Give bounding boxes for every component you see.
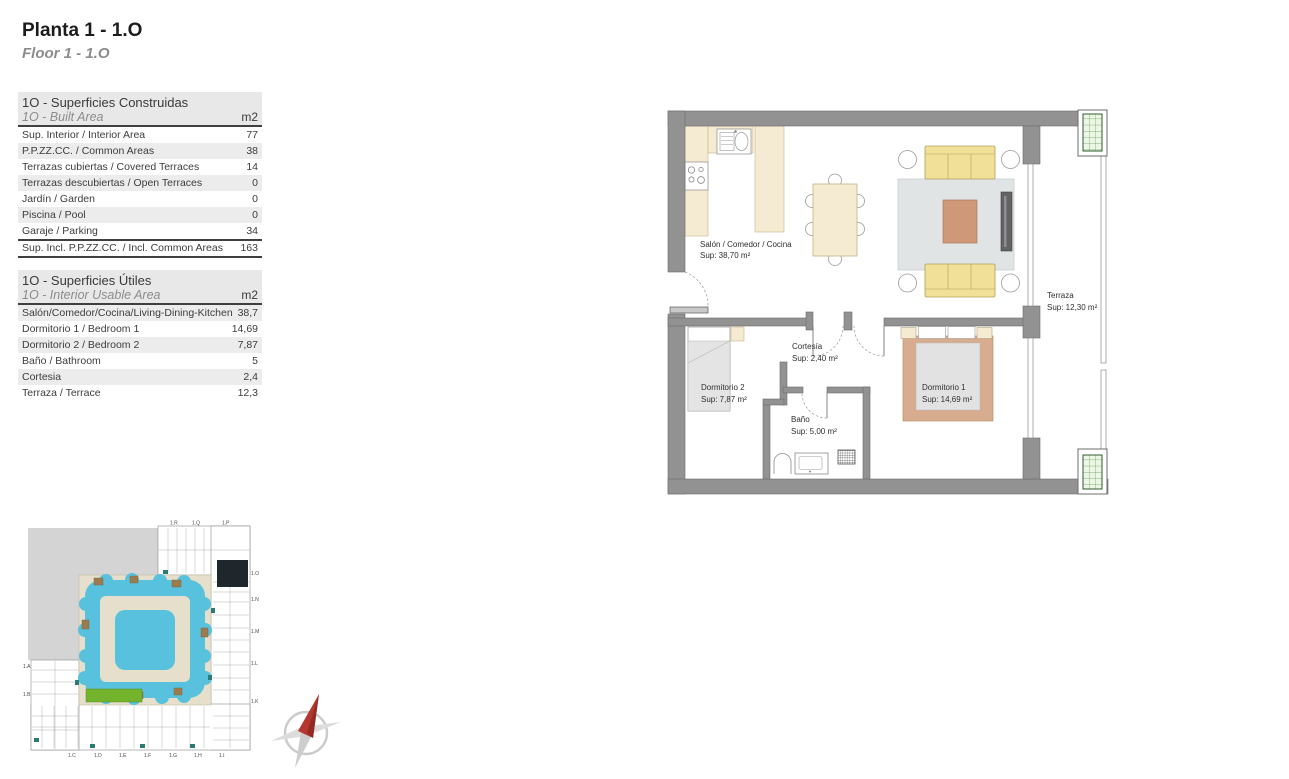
site-label-bottom: 1.C <box>68 753 76 759</box>
highlighted-unit-1o <box>217 560 248 587</box>
row-value: 0 <box>252 175 258 191</box>
row-label: Sup. Incl. P.P.ZZ.CC. / Incl. Common Are… <box>22 241 223 256</box>
table-row: Salón/Comedor/Cocina/Living-Dining-Kitch… <box>18 305 262 321</box>
table-row: Terrazas descubiertas / Open Terraces0 <box>18 175 262 191</box>
room-label-cortesia: Cortesía <box>792 342 823 351</box>
table-row-total: Sup. Incl. P.P.ZZ.CC. / Incl. Common Are… <box>18 239 262 258</box>
lawn <box>86 689 142 702</box>
site-label-right-highlighted: 1.O <box>251 571 259 577</box>
built-areas-unit: m2 <box>241 110 258 124</box>
row-label: Terraza / Terrace <box>22 385 101 401</box>
walls <box>668 111 1108 494</box>
row-label: Cortesia <box>22 369 61 385</box>
site-label-bottom: 1.H <box>194 753 202 759</box>
site-label-bottom: 1.I <box>219 753 225 759</box>
usable-areas-title-en: 1O - Interior Usable Area <box>22 288 160 302</box>
site-label-right: 1.M <box>251 629 259 635</box>
room-area-salon: Sup: 38,70 m² <box>700 251 751 260</box>
compass-icon <box>266 684 352 774</box>
row-value: 38 <box>246 143 258 159</box>
site-label-top: 1.Q <box>192 521 200 527</box>
shaft-bottom-icon <box>1078 449 1107 494</box>
row-label: Garaje / Parking <box>22 223 98 239</box>
floor-plan: Salón / Comedor / Cocina Sup: 38,70 m² T… <box>660 100 1110 500</box>
page-title: Planta 1 - 1.O <box>22 20 142 42</box>
toilet-icon <box>774 454 791 475</box>
site-plan: 1.R 1.Q 1.P 1.O 1.N 1.M 1.L 1.K 1.A 1.B … <box>22 520 262 768</box>
dining-table <box>806 174 865 266</box>
row-value: 163 <box>240 241 258 256</box>
room-area-terraza: Sup: 12,30 m² <box>1047 303 1098 312</box>
row-value: 34 <box>246 223 258 239</box>
table-row: P.P.ZZ.CC. / Common Areas38 <box>18 143 262 159</box>
table-row: Cortesia2,4 <box>18 369 262 385</box>
table-row: Sup. Interior / Interior Area77 <box>18 127 262 143</box>
site-label-right: 1.L <box>251 661 258 667</box>
vanity-icon <box>795 453 828 474</box>
row-label: Baño / Bathroom <box>22 353 101 369</box>
row-value: 2,4 <box>243 369 258 385</box>
compass <box>266 684 352 774</box>
row-value: 0 <box>252 207 258 223</box>
row-label: Jardín / Garden <box>22 191 95 207</box>
bathroom-fixtures <box>774 450 855 474</box>
row-value: 0 <box>252 191 258 207</box>
table-row: Baño / Bathroom5 <box>18 353 262 369</box>
row-label: P.P.ZZ.CC. / Common Areas <box>22 143 154 159</box>
row-label: Sup. Interior / Interior Area <box>22 127 145 143</box>
row-label: Terrazas descubiertas / Open Terraces <box>22 175 202 191</box>
stove-icon <box>685 162 708 190</box>
sofa <box>925 146 995 179</box>
usable-areas-unit: m2 <box>241 288 258 302</box>
site-plan-drawing: 1.R 1.Q 1.P 1.O 1.N 1.M 1.L 1.K 1.A 1.B … <box>22 520 262 768</box>
row-value: 14 <box>246 159 258 175</box>
room-label-dormitorio2: Dormitorio 2 <box>701 383 745 392</box>
shaft-top-icon <box>1078 110 1107 156</box>
site-label-bottom: 1.F <box>144 753 151 759</box>
room-label-salon: Salón / Comedor / Cocina <box>700 240 792 249</box>
bedroom1-bed <box>901 327 993 422</box>
row-label: Dormitorio 2 / Bedroom 2 <box>22 337 139 353</box>
row-label: Terrazas cubiertas / Covered Terraces <box>22 159 199 175</box>
built-areas-title-es: 1O - Superficies Construidas <box>22 95 258 110</box>
page: { "page": { "title": "Planta 1 - 1.O", "… <box>0 0 1289 777</box>
sofa <box>925 264 995 297</box>
table-row: Dormitorio 1 / Bedroom 114,69 <box>18 321 262 337</box>
row-label: Salón/Comedor/Cocina/Living-Dining-Kitch… <box>22 305 233 321</box>
table-row: Terraza / Terrace12,3 <box>18 385 262 401</box>
site-label-bottom: 1.E <box>119 753 127 759</box>
floor-plan-drawing: Salón / Comedor / Cocina Sup: 38,70 m² T… <box>660 100 1110 500</box>
site-label-top: 1.R <box>170 521 178 527</box>
usable-areas-table: 1O - Superficies Útiles 1O - Interior Us… <box>18 270 262 401</box>
usable-areas-title-es: 1O - Superficies Útiles <box>22 273 258 288</box>
table-row: Garaje / Parking34 <box>18 223 262 239</box>
site-label-bottom: 1.D <box>94 753 102 759</box>
site-label-top: 1.P <box>222 521 230 527</box>
shower-drain-icon <box>838 450 855 464</box>
entrance-door-leaf <box>670 307 708 313</box>
site-label-right: 1.N <box>251 597 259 603</box>
row-value: 38,7 <box>238 305 258 321</box>
room-label-terraza: Terraza <box>1047 291 1074 300</box>
built-areas-header: 1O - Superficies Construidas 1O - Built … <box>18 92 262 127</box>
page-subtitle: Floor 1 - 1.O <box>22 45 110 62</box>
built-areas-title-en: 1O - Built Area <box>22 110 104 124</box>
row-label: Dormitorio 1 / Bedroom 1 <box>22 321 139 337</box>
row-label: Piscina / Pool <box>22 207 86 223</box>
living-area <box>898 146 1020 297</box>
central-pool <box>115 610 175 670</box>
row-value: 77 <box>246 127 258 143</box>
table-row: Dormitorio 2 / Bedroom 27,87 <box>18 337 262 353</box>
tv-screen <box>1004 196 1007 247</box>
usable-areas-header: 1O - Superficies Útiles 1O - Interior Us… <box>18 270 262 305</box>
built-areas-table: 1O - Superficies Construidas 1O - Built … <box>18 92 262 258</box>
courtyard-pool <box>78 573 212 705</box>
site-label-bottom: 1.G <box>169 753 177 759</box>
row-value: 7,87 <box>238 337 258 353</box>
site-label-left: 1.A <box>23 664 31 670</box>
sink-icon <box>717 129 751 154</box>
room-area-dormitorio1: Sup: 14,69 m² <box>922 395 973 404</box>
room-area-dormitorio2: Sup: 7,87 m² <box>701 395 747 404</box>
row-value: 5 <box>252 353 258 369</box>
room-area-bano: Sup: 5,00 m² <box>791 427 837 436</box>
site-label-right: 1.K <box>251 699 259 705</box>
row-value: 14,69 <box>232 321 258 337</box>
site-label-left: 1.B <box>23 692 31 698</box>
room-label-bano: Baño <box>791 415 810 424</box>
room-area-cortesia: Sup: 2,40 m² <box>792 354 838 363</box>
row-value: 12,3 <box>238 385 258 401</box>
room-label-dormitorio1: Dormitorio 1 <box>922 383 966 392</box>
table-row: Terrazas cubiertas / Covered Terraces14 <box>18 159 262 175</box>
coffee-table <box>943 200 977 243</box>
table-row: Jardín / Garden0 <box>18 191 262 207</box>
table-row: Piscina / Pool0 <box>18 207 262 223</box>
